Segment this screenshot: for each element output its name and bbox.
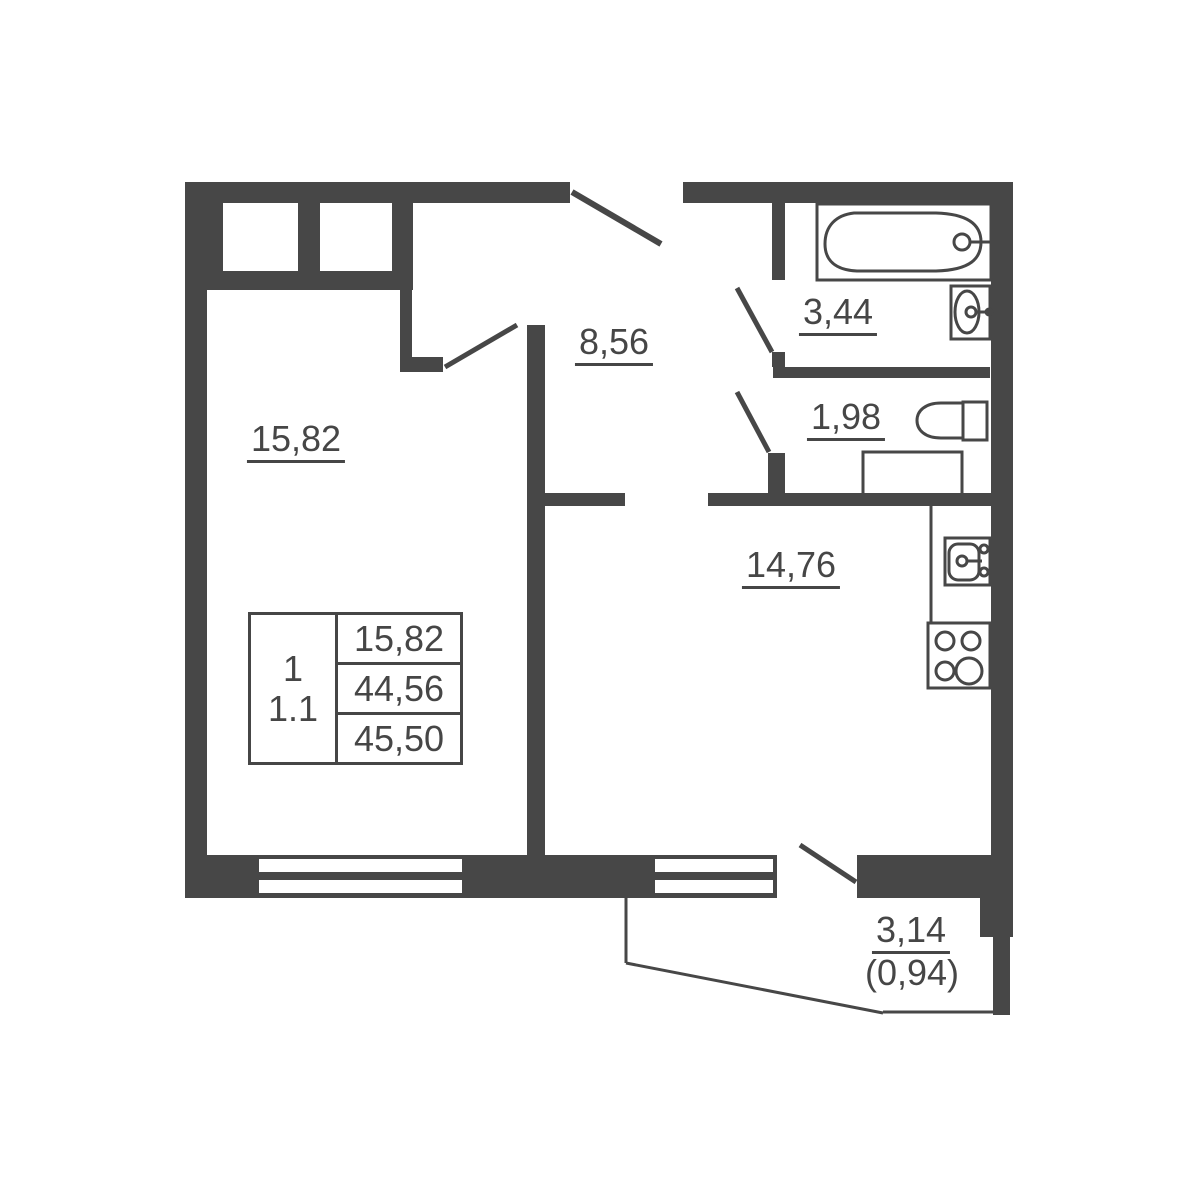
toilet-door-leaf [737, 392, 769, 452]
info-table-left-cell: 1 1.1 [251, 615, 338, 762]
balcony-diagonal-line [626, 963, 883, 1013]
cabinet-icon [863, 452, 962, 495]
bathroom-area-value: 3,44 [799, 294, 877, 336]
hallway-area-value: 8,56 [575, 324, 653, 366]
entrance-door-leaf [572, 192, 661, 244]
kitchen-area-value: 14,76 [742, 547, 840, 589]
toilet-bowl-icon [917, 402, 987, 440]
washbasin-icon [951, 286, 992, 339]
fixtures-layer [0, 0, 1200, 1200]
balcony-area-value: 3,14 [872, 912, 950, 954]
label-hallway-area: 8,56 [575, 324, 653, 366]
info-living-area: 15,82 [338, 615, 460, 665]
floor-plan: 15,82 8,56 3,44 1,98 14,76 3,14 (0,94) 1… [0, 0, 1200, 1200]
info-total-area: 45,50 [338, 715, 460, 762]
label-living-room-area: 15,82 [247, 421, 345, 463]
label-balcony-area: 3,14 [872, 912, 950, 954]
living-room-area-value: 15,82 [247, 421, 345, 463]
info-table-right-column: 15,82 44,56 45,50 [338, 615, 460, 762]
info-area-without-balcony: 44,56 [338, 665, 460, 715]
kitchen-sink-icon [945, 538, 990, 585]
stove-icon [928, 623, 990, 688]
info-layout-code: 1.1 [268, 689, 318, 729]
toilet-area-value: 1,98 [807, 399, 885, 441]
balcony-reduced-area-value: (0,94) [865, 952, 959, 993]
living-room-door-leaf [445, 325, 517, 367]
balcony-door-leaf [800, 845, 856, 882]
info-table: 1 1.1 15,82 44,56 45,50 [248, 612, 463, 765]
label-toilet-area: 1,98 [807, 399, 885, 441]
bathtub-icon [817, 204, 991, 280]
label-kitchen-area: 14,76 [742, 547, 840, 589]
bathroom-door-leaf [737, 288, 772, 352]
info-rooms-count: 1 [283, 649, 303, 689]
label-balcony-reduced-area: (0,94) [865, 955, 959, 991]
label-bathroom-area: 3,44 [799, 294, 877, 336]
